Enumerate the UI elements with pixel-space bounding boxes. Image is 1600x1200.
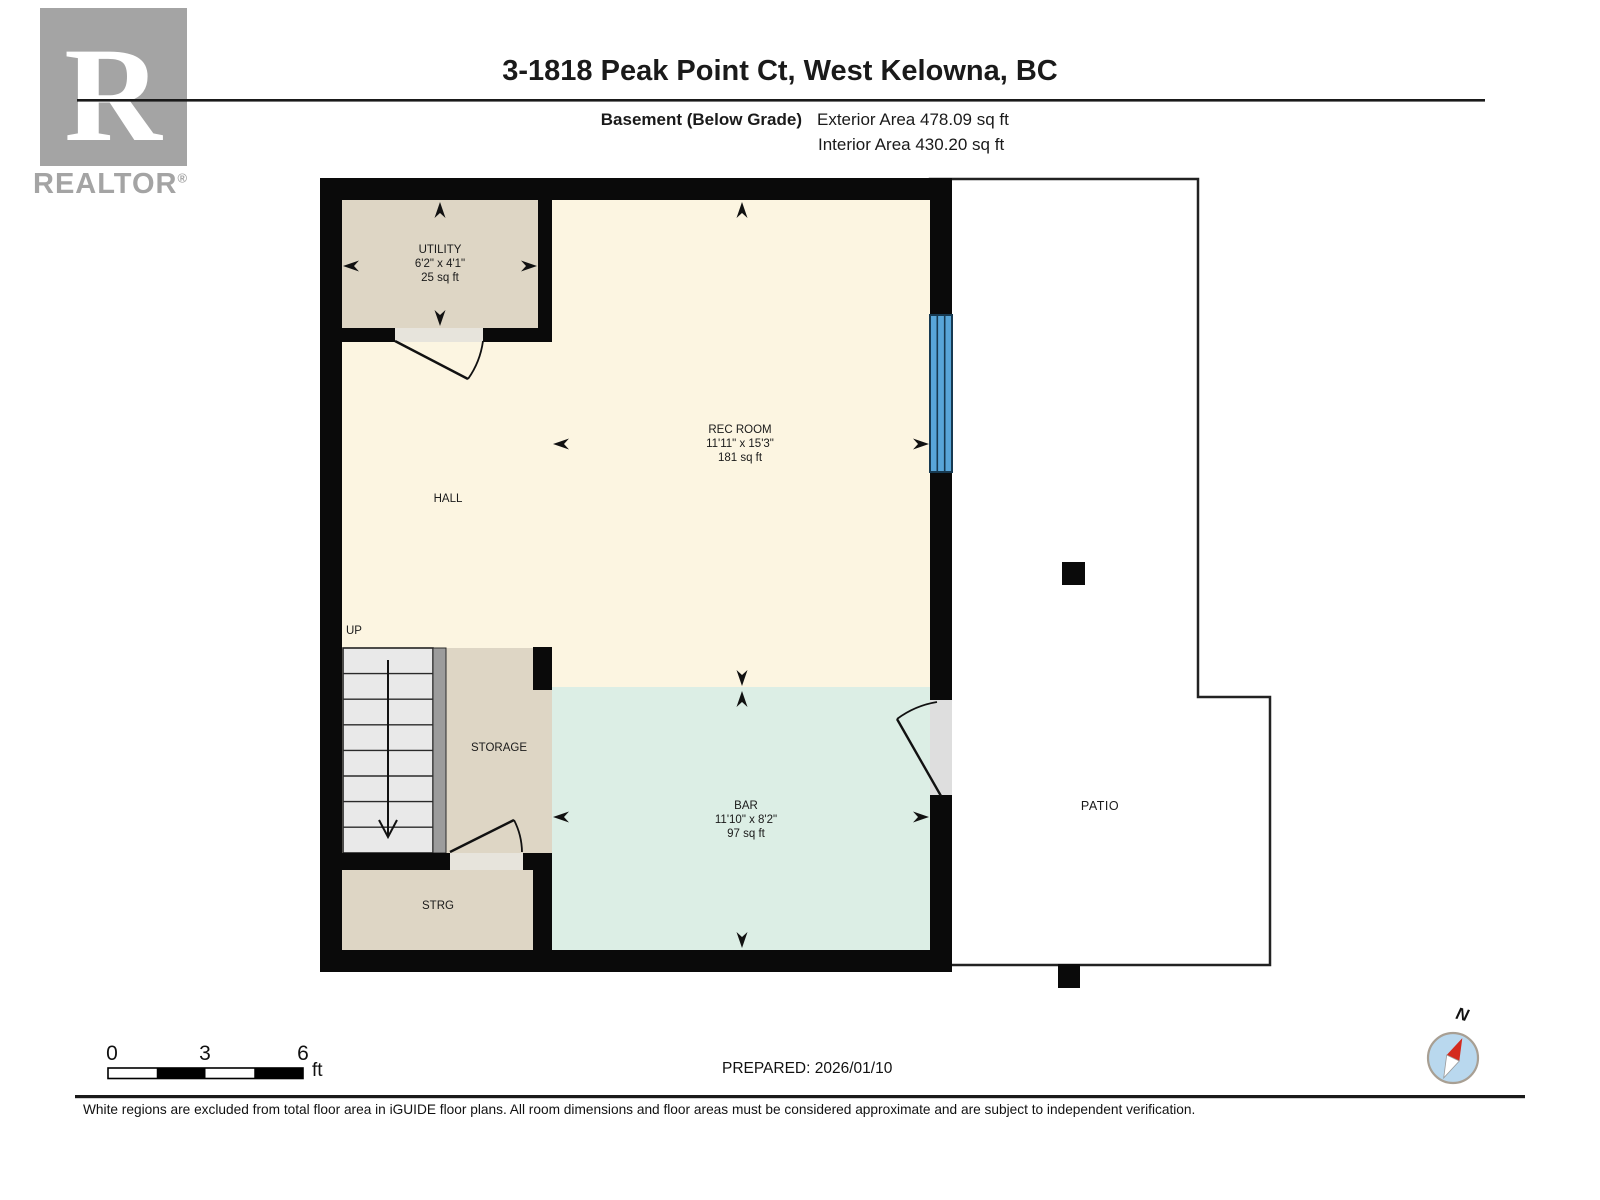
- realtor-logo: R: [40, 8, 187, 170]
- bar-room-label: BAR 11'10" x 8'2" 97 sq ft: [646, 799, 846, 841]
- floorplan-page: R: [0, 0, 1600, 1200]
- patio-outline: [930, 179, 1270, 965]
- bar-name: BAR: [646, 799, 846, 813]
- utility-room-label: UTILITY 6'2" x 4'1" 25 sq ft: [340, 243, 540, 285]
- utility-name: UTILITY: [340, 243, 540, 257]
- scale-tick-6: 6: [292, 1042, 314, 1066]
- utility-area: 25 sq ft: [340, 271, 540, 285]
- prepared-date: PREPARED: 2026/01/10: [722, 1060, 892, 1078]
- staircase: [343, 648, 446, 853]
- realtor-wordmark: REALTOR®: [33, 168, 188, 201]
- recroom-name: REC ROOM: [640, 423, 840, 437]
- scale-bar: [108, 1068, 303, 1079]
- recroom-area: 181 sq ft: [640, 451, 840, 465]
- floorplan-drawing: R: [0, 0, 1600, 1200]
- compass: [1428, 1033, 1478, 1083]
- bar-area: 97 sq ft: [646, 827, 846, 841]
- utility-dimensions: 6'2" x 4'1": [340, 257, 540, 271]
- realtor-logo-letter: R: [64, 21, 163, 170]
- scale-tick-3: 3: [194, 1042, 216, 1066]
- storage-door-threshold: [450, 853, 523, 870]
- exterior-area-value: Exterior Area 478.09 sq ft: [817, 110, 1009, 130]
- scale-tick-0: 0: [101, 1042, 123, 1066]
- scale-unit-label: ft: [312, 1060, 323, 1082]
- registered-mark: ®: [177, 170, 188, 185]
- floor-label: Basement (Below Grade): [520, 110, 802, 130]
- utility-door-threshold: [395, 328, 483, 342]
- bar-dimensions: 11'10" x 8'2": [646, 813, 846, 827]
- window: [930, 315, 952, 472]
- stairs-up-label: UP: [346, 625, 362, 637]
- patio-label: PATIO: [1020, 799, 1180, 813]
- page-title: 3-1818 Peak Point Ct, West Kelowna, BC: [380, 55, 1180, 88]
- recroom-dimensions: 11'11" x 15'3": [640, 437, 840, 451]
- patio-post-lower: [1058, 964, 1080, 988]
- header-divider-line: [77, 99, 1485, 102]
- footer-disclaimer: White regions are excluded from total fl…: [83, 1102, 1195, 1117]
- hall-label: HALL: [398, 492, 498, 506]
- recroom-label: REC ROOM 11'11" x 15'3" 181 sq ft: [640, 423, 840, 465]
- realtor-wordmark-text: REALTOR: [33, 168, 177, 200]
- patio-post-upper: [1062, 562, 1085, 585]
- footer-divider-line: [75, 1095, 1525, 1098]
- storage-label: STORAGE: [439, 741, 559, 755]
- strg-label: STRG: [388, 899, 488, 913]
- interior-area-value: Interior Area 430.20 sq ft: [818, 135, 1004, 155]
